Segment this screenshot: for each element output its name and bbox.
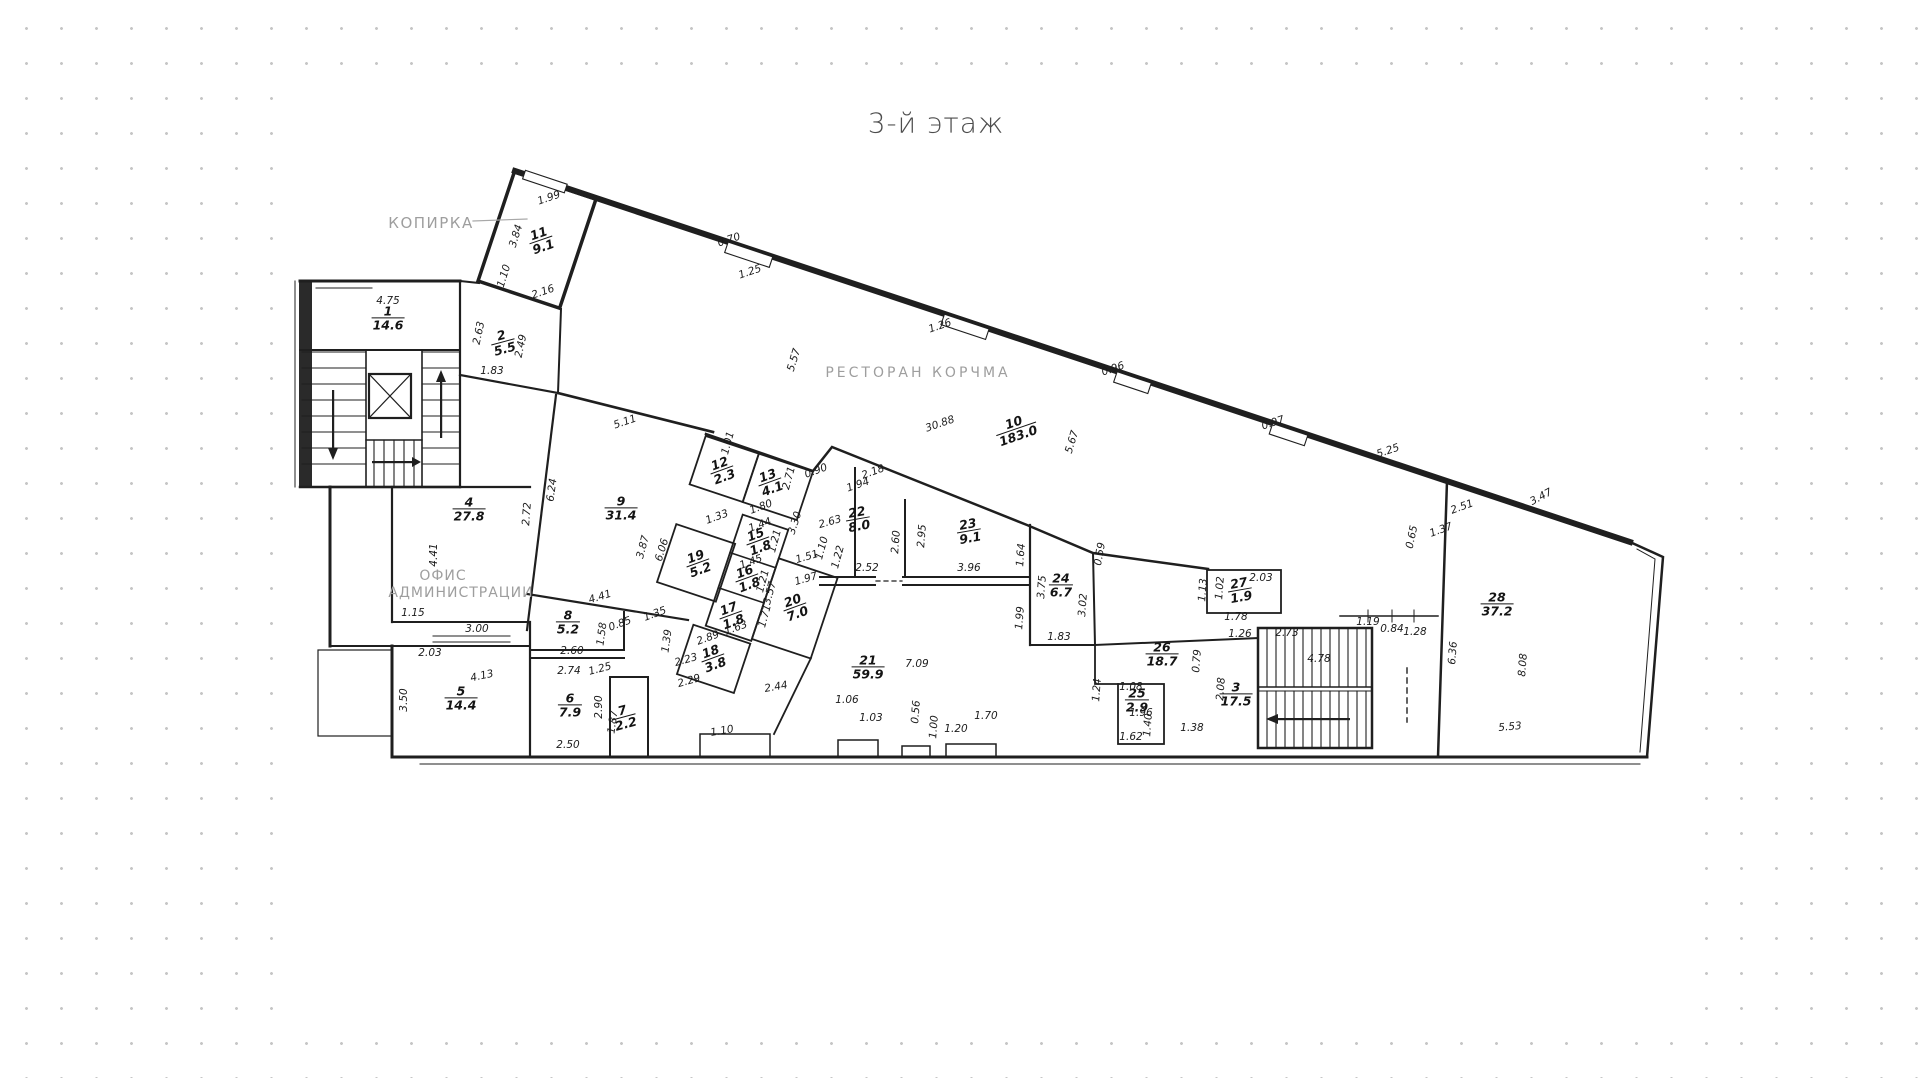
room2-diag-wall <box>460 375 558 393</box>
room25-link-wall <box>1095 645 1118 684</box>
west-bay <box>318 650 392 736</box>
kopirka-link-wall <box>558 309 561 393</box>
corridor26-north-wall <box>1095 638 1258 645</box>
north-slanted-wall <box>515 171 1630 542</box>
right-staircase-walls <box>1258 628 1372 748</box>
room9-south-diag-wall <box>527 594 688 620</box>
right-stair-arrow <box>1266 714 1350 724</box>
kopirka-room <box>478 172 596 308</box>
room25-walls <box>1118 684 1164 744</box>
east-wall <box>1630 542 1663 757</box>
right-stair-steps-upper <box>1267 628 1366 686</box>
kopirka-window <box>523 170 568 192</box>
walls <box>295 167 1663 839</box>
east-wall-inner <box>1637 549 1655 752</box>
wc-divider-2 <box>718 588 764 603</box>
room18-walls <box>677 625 750 693</box>
rotated-wall-group <box>380 167 1309 839</box>
office-restaurant-wall <box>558 393 713 432</box>
room13-walls <box>743 454 813 520</box>
room20-walls <box>752 558 838 658</box>
south-wall-bumps <box>700 734 996 757</box>
wc-divider-1 <box>730 553 776 568</box>
floor-plan-drawing <box>0 0 1920 1078</box>
room27-walls <box>1207 570 1281 613</box>
room24-east-wall <box>1093 553 1095 645</box>
stair-steps-bottom-flight <box>374 440 414 487</box>
room12-walls <box>690 436 759 502</box>
room28-west-wall <box>1438 481 1447 757</box>
room21-inner-wall <box>774 658 811 734</box>
wc-column-walls <box>706 515 789 641</box>
